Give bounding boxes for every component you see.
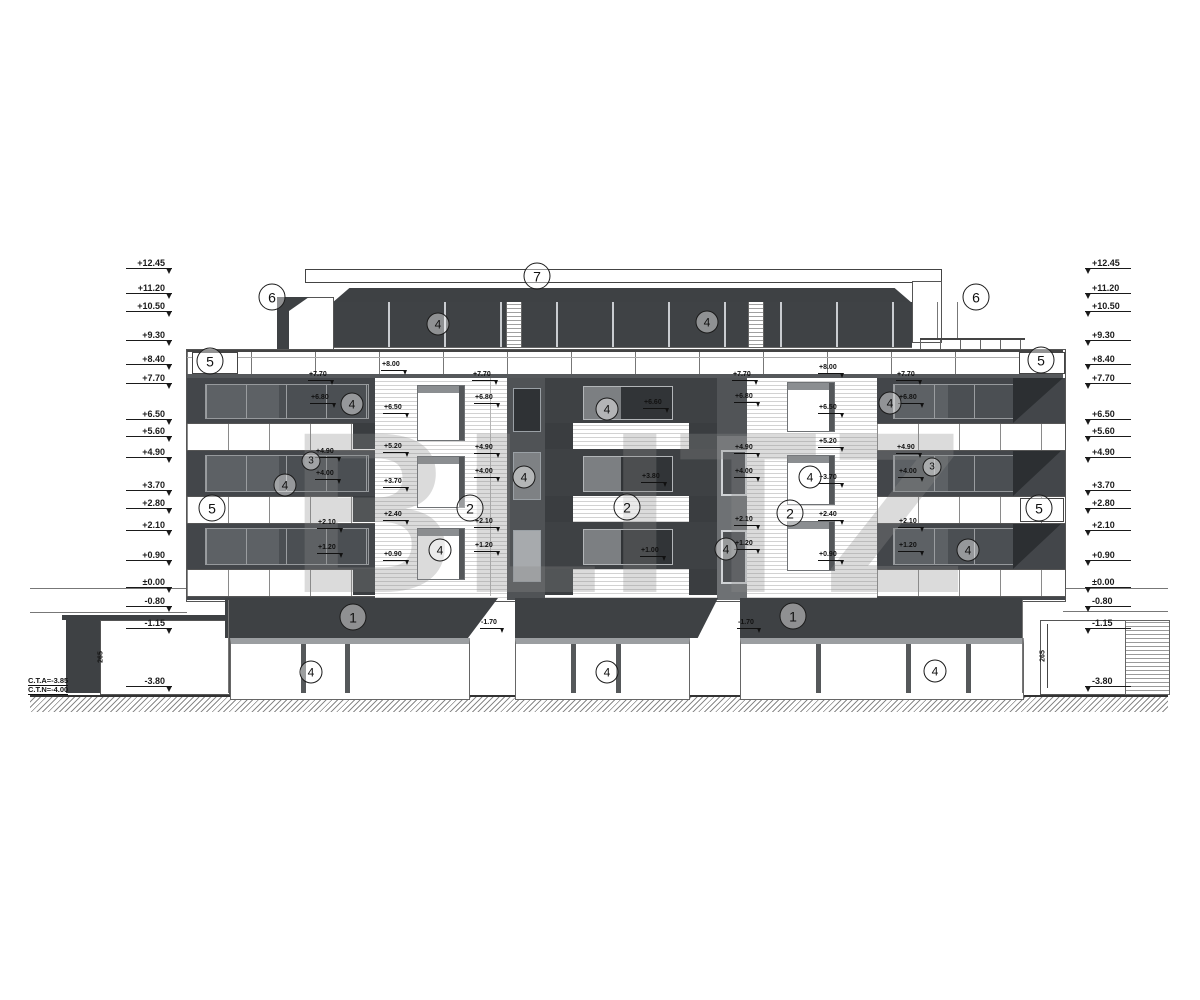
level-marker: +6.50 — [126, 408, 172, 420]
level-marker: +7.70 — [126, 372, 172, 384]
level-arrow-icon — [166, 508, 172, 514]
mullion — [816, 644, 821, 693]
penthouse-left-pillar — [277, 297, 289, 349]
callout6-leader-a — [937, 302, 938, 338]
ground-band-a — [225, 598, 498, 638]
mullion — [616, 644, 621, 693]
zero-line-left — [30, 588, 187, 589]
facade-level-label: -1.70 — [480, 619, 503, 629]
level-arrow-icon — [166, 340, 172, 346]
callout-circle: 6 — [963, 284, 990, 311]
level-marker: +8.40 — [1085, 353, 1131, 365]
level-arrow-icon — [166, 490, 172, 496]
penthouse-vent-right — [748, 302, 764, 348]
level-arrow-icon — [166, 293, 172, 299]
level-arrow-icon — [500, 628, 504, 633]
level-marker: ±0.00 — [126, 576, 172, 588]
level-arrow-icon — [1085, 490, 1091, 496]
level-marker: -0.80 — [1085, 595, 1131, 607]
roof-slab — [305, 269, 942, 283]
storefront-b — [515, 638, 690, 700]
level-arrow-icon — [166, 419, 172, 425]
roof-fascia — [332, 288, 912, 303]
level-arrow-icon — [166, 457, 172, 463]
level-arrow-icon — [166, 383, 172, 389]
storefront-c — [740, 638, 1024, 700]
level-arrow-icon — [1085, 293, 1091, 299]
level-arrow-icon — [1085, 419, 1091, 425]
level-marker: +3.70 — [126, 479, 172, 491]
level-arrow-icon — [166, 364, 172, 370]
ground-right-edge — [1022, 600, 1023, 693]
level-marker: +0.90 — [126, 549, 172, 561]
level-marker: +4.90 — [1085, 446, 1131, 458]
level-arrow-icon — [1085, 340, 1091, 346]
ground-band-b — [515, 598, 718, 638]
level-marker: ±0.00 — [1085, 576, 1131, 588]
level-arrow-icon — [1085, 383, 1091, 389]
level-marker: +0.90 — [1085, 549, 1131, 561]
level-arrow-icon — [166, 436, 172, 442]
level-marker: +6.50 — [1085, 408, 1131, 420]
mullion — [906, 644, 911, 693]
callout6-leader-b — [957, 302, 958, 338]
level-marker: +8.40 — [126, 353, 172, 365]
main-outline — [186, 349, 1066, 602]
level-marker: +2.10 — [126, 519, 172, 531]
left-annex-pillar — [66, 620, 100, 693]
level-arrow-icon — [166, 311, 172, 317]
level-marker: +10.50 — [1085, 300, 1131, 312]
level-marker: +7.70 — [1085, 372, 1131, 384]
level-arrow-icon — [1085, 311, 1091, 317]
elevation-drawing-canvas: BLITZ +12.45+11.20+10.50+9.30+8.40+7.70+… — [0, 0, 1200, 1000]
minus080-line-left — [30, 612, 187, 613]
level-arrow-icon — [166, 530, 172, 536]
level-arrow-icon — [166, 560, 172, 566]
storefront-a — [230, 638, 470, 700]
right-annex-room — [1040, 620, 1127, 695]
level-marker: +2.80 — [126, 497, 172, 509]
level-arrow-icon — [1085, 364, 1091, 370]
level-marker: +12.45 — [126, 257, 172, 269]
level-marker: +4.90 — [126, 446, 172, 458]
level-marker: +11.20 — [1085, 282, 1131, 294]
level-marker: +5.60 — [1085, 425, 1131, 437]
level-marker: +2.10 — [1085, 519, 1131, 531]
level-arrow-icon — [1085, 508, 1091, 514]
level-marker: +9.30 — [126, 329, 172, 341]
level-marker: +11.20 — [126, 282, 172, 294]
ground-left-edge — [228, 600, 229, 693]
mullion — [966, 644, 971, 693]
right-annex-dim-line — [1047, 624, 1048, 688]
level-arrow-icon — [166, 268, 172, 274]
note-ctn: C.T.N=-4.00 — [28, 685, 68, 695]
level-marker: +2.80 — [1085, 497, 1131, 509]
ground-band-c — [740, 598, 1022, 638]
level-arrow-icon — [1085, 560, 1091, 566]
zero-line-right — [1063, 588, 1168, 589]
left-annex-room — [100, 620, 230, 695]
level-marker: +9.30 — [1085, 329, 1131, 341]
mullion — [345, 644, 350, 693]
mullion — [301, 644, 306, 693]
level-arrow-icon — [1085, 457, 1091, 463]
level-marker: +12.45 — [1085, 257, 1131, 269]
level-marker: +5.60 — [126, 425, 172, 437]
penthouse-vent-left — [506, 302, 522, 348]
penthouse-glazing — [332, 302, 912, 348]
level-marker: -0.80 — [126, 595, 172, 607]
level-marker: +10.50 — [126, 300, 172, 312]
level-arrow-icon — [1085, 530, 1091, 536]
minus080-line-right — [1063, 611, 1168, 612]
level-arrow-icon — [1085, 268, 1091, 274]
mullion — [571, 644, 576, 693]
level-marker: +3.70 — [1085, 479, 1131, 491]
right-stair-hatch — [1125, 620, 1170, 695]
level-arrow-icon — [1085, 436, 1091, 442]
